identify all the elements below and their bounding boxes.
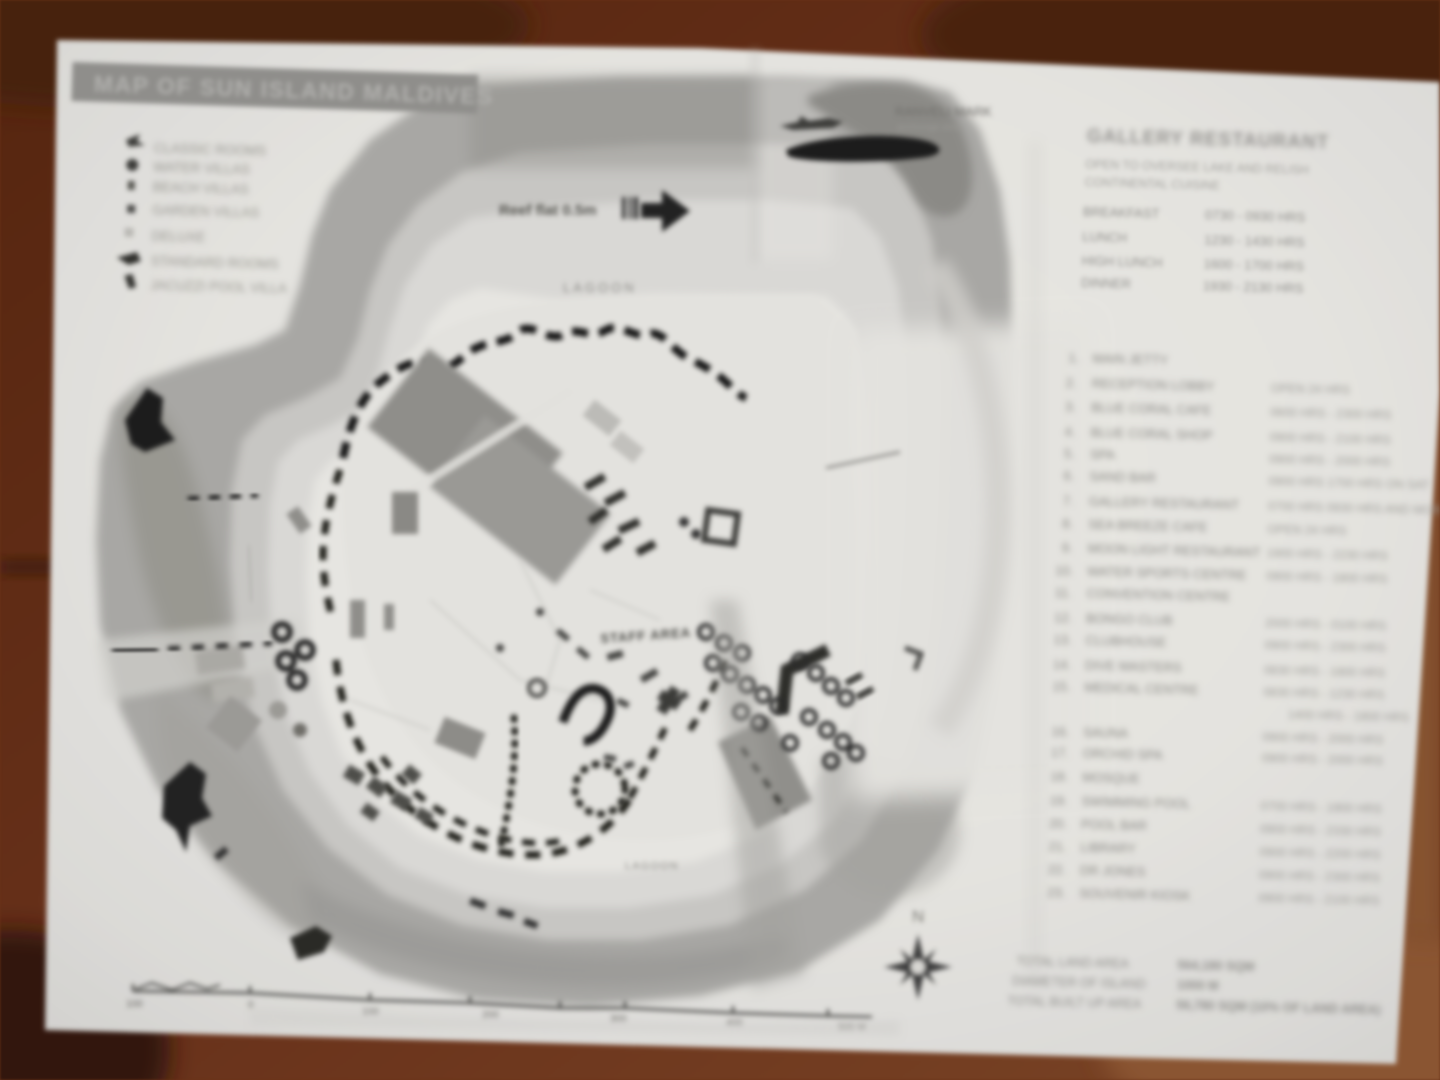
svg-text:BEACH VILLAS: BEACH VILLAS xyxy=(153,179,249,197)
svg-text:OPEN 24 HRS: OPEN 24 HRS xyxy=(1267,522,1347,538)
svg-text:0900 HRS - 2100 HRS: 0900 HRS - 2100 HRS xyxy=(1258,891,1380,908)
svg-text:GARDEN VILLAS: GARDEN VILLAS xyxy=(152,202,260,220)
svg-text:10.: 10. xyxy=(1055,563,1073,578)
svg-text:SAND BAR: SAND BAR xyxy=(1089,469,1156,486)
svg-text:DINNER: DINNER xyxy=(1081,275,1131,291)
svg-text:0830 HRS - 1800 HRS: 0830 HRS - 1800 HRS xyxy=(1264,663,1386,680)
svg-text:0900 HRS - 2200 HRS: 0900 HRS - 2200 HRS xyxy=(1259,845,1381,862)
svg-text:0900 HRS - 2100 HRS: 0900 HRS - 2100 HRS xyxy=(1269,430,1391,447)
svg-text:1.: 1. xyxy=(1068,350,1079,365)
svg-text:MOSQUE: MOSQUE xyxy=(1082,770,1140,786)
svg-text:0900 HRS - 2000 HRS: 0900 HRS - 2000 HRS xyxy=(1269,452,1391,469)
svg-text:11.: 11. xyxy=(1054,585,1071,600)
svg-text:BLUE CORAL SHOP: BLUE CORAL SHOP xyxy=(1090,425,1213,443)
svg-text:LAGOON: LAGOON xyxy=(625,860,679,872)
svg-text:N: N xyxy=(912,907,924,926)
svg-text:1600 - 1700 HRS: 1600 - 1700 HRS xyxy=(1203,256,1304,274)
svg-text:100: 100 xyxy=(126,999,143,1010)
svg-text:18.: 18. xyxy=(1050,769,1068,784)
svg-text:SAUNA: SAUNA xyxy=(1083,725,1128,741)
svg-text:CLUBHOUSE: CLUBHOUSE xyxy=(1085,633,1167,650)
svg-text:1930 - 2130 HRS: 1930 - 2130 HRS xyxy=(1203,278,1304,296)
svg-text:DR JONES: DR JONES xyxy=(1080,863,1146,880)
svg-text:1230 - 1430 HRS: 1230 - 1430 HRS xyxy=(1204,232,1305,250)
svg-text:12.: 12. xyxy=(1054,610,1072,625)
svg-text:19.: 19. xyxy=(1049,793,1067,808)
svg-text:DELUXE: DELUXE xyxy=(151,228,205,244)
svg-text:LIBRARY: LIBRARY xyxy=(1080,840,1136,856)
svg-text:DIVE MASTERS: DIVE MASTERS xyxy=(1085,658,1182,675)
svg-text:POOL BAR: POOL BAR xyxy=(1081,817,1147,834)
svg-text:MAIN JETTY: MAIN JETTY xyxy=(1092,351,1169,368)
svg-text:0900 HRS - 2300 HRS: 0900 HRS - 2300 HRS xyxy=(1264,638,1386,655)
svg-text:LUNCH: LUNCH xyxy=(1082,229,1127,245)
svg-text:1000 M: 1000 M xyxy=(1177,978,1219,993)
svg-text:RECEPTION LOBBY: RECEPTION LOBBY xyxy=(1092,376,1215,394)
svg-text:0830 HRS - 1230 HRS: 0830 HRS - 1230 HRS xyxy=(1263,685,1385,702)
svg-text:0900 HRS - 2000 HRS: 0900 HRS - 2000 HRS xyxy=(1262,751,1384,768)
svg-text:BONGO CLUB: BONGO CLUB xyxy=(1086,611,1173,628)
svg-text:20.: 20. xyxy=(1049,816,1067,831)
svg-text:1900 HRS - 2230 HRS: 1900 HRS - 2230 HRS xyxy=(1267,546,1389,563)
svg-text:0700 HRS - 1900 HRS: 0700 HRS - 1900 HRS xyxy=(1260,799,1382,816)
svg-text:1400 HRS - 1800 HRS: 1400 HRS - 1800 HRS xyxy=(1288,708,1410,725)
svg-text:0900 HRS - 2330 HRS: 0900 HRS - 2330 HRS xyxy=(1260,822,1382,839)
svg-text:anchorage area: anchorage area xyxy=(897,122,960,132)
svg-text:6.: 6. xyxy=(1063,468,1074,483)
svg-text:0600 HRS - 2300 HRS: 0600 HRS - 2300 HRS xyxy=(1270,405,1392,422)
svg-text:0900 HRS - 2300 HRS: 0900 HRS - 2300 HRS xyxy=(1259,868,1381,885)
svg-text:9.: 9. xyxy=(1062,540,1073,555)
svg-text:BREAKFAST: BREAKFAST xyxy=(1083,204,1160,221)
svg-text:RANVELI MARK: RANVELI MARK xyxy=(895,104,992,119)
svg-text:13.: 13. xyxy=(1053,632,1071,647)
svg-text:0900 HRS - 1800 HRS: 0900 HRS - 1800 HRS xyxy=(1266,569,1388,586)
svg-text:CLASSIC ROOMS: CLASSIC ROOMS xyxy=(154,140,267,158)
svg-text:564,180 SQM: 564,180 SQM xyxy=(1177,958,1254,974)
svg-text:5.: 5. xyxy=(1064,446,1075,461)
svg-text:BLUE CORAL CAFE: BLUE CORAL CAFE xyxy=(1091,400,1212,418)
svg-text:16.: 16. xyxy=(1051,724,1069,739)
svg-text:3.: 3. xyxy=(1065,399,1076,414)
svg-text:SWIMMING POOL: SWIMMING POOL xyxy=(1081,794,1190,812)
svg-text:0900 HRS - 2000 HRS: 0900 HRS - 2000 HRS xyxy=(1262,730,1384,747)
svg-text:2.: 2. xyxy=(1066,375,1077,390)
svg-text:7.: 7. xyxy=(1063,493,1074,508)
svg-text:OPEN 24 HRS: OPEN 24 HRS xyxy=(1271,381,1351,397)
svg-text:SPA: SPA xyxy=(1090,447,1116,463)
svg-text:15.: 15. xyxy=(1052,679,1070,694)
svg-text:LAGOON: LAGOON xyxy=(563,280,637,295)
svg-text:WATER VILLAS: WATER VILLAS xyxy=(153,159,250,177)
svg-text:8.: 8. xyxy=(1062,516,1073,531)
svg-text:22.: 22. xyxy=(1048,862,1066,877)
svg-text:17.: 17. xyxy=(1051,745,1069,760)
svg-text:14.: 14. xyxy=(1053,657,1071,672)
svg-text:SEA BREEZE CAFE: SEA BREEZE CAFE xyxy=(1088,517,1208,535)
svg-text:2000 HRS - 0100 HRS: 2000 HRS - 0100 HRS xyxy=(1265,616,1387,633)
svg-text:21.: 21. xyxy=(1048,839,1066,854)
svg-text:SOUVENIR KIOSK: SOUVENIR KIOSK xyxy=(1079,886,1191,904)
svg-text:23.: 23. xyxy=(1047,885,1065,900)
svg-text:MEDICAL CENTRE: MEDICAL CENTRE xyxy=(1084,680,1199,698)
svg-text:HIGH LUNCH: HIGH LUNCH xyxy=(1081,253,1162,270)
svg-text:ORCHID SPA: ORCHID SPA xyxy=(1083,746,1164,763)
svg-text:0730 - 0930 HRS: 0730 - 0930 HRS xyxy=(1205,207,1306,225)
svg-text:Reef flat 0.5m: Reef flat 0.5m xyxy=(499,202,597,219)
svg-text:4.: 4. xyxy=(1064,424,1075,439)
